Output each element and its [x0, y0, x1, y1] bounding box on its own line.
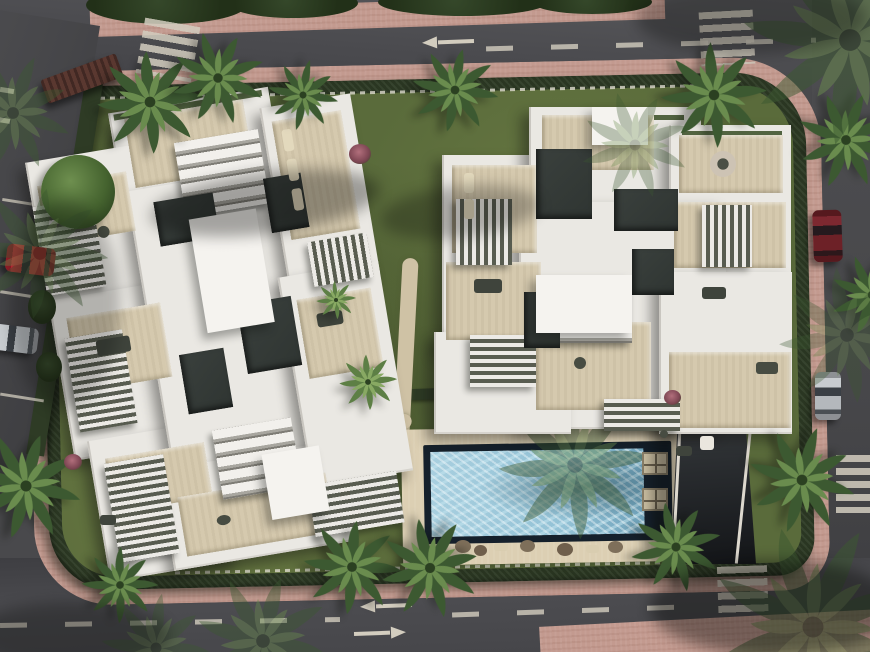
- garden-palm: [314, 278, 358, 322]
- pergola: [702, 205, 752, 267]
- garden-table: [100, 515, 116, 525]
- garden-table: [676, 446, 692, 456]
- outdoor-furniture: [574, 357, 586, 369]
- dining-table: [702, 287, 726, 299]
- courtyard: [179, 348, 233, 415]
- parasol: [557, 543, 573, 556]
- garden-table: [700, 436, 714, 450]
- parasol: [520, 540, 535, 552]
- sun-lounger: [586, 545, 599, 553]
- palm-tree: [365, 503, 495, 633]
- garden-palm: [336, 350, 400, 414]
- flower-bush: [64, 454, 82, 470]
- shadow-blob: [10, 200, 120, 410]
- flower-bush: [349, 144, 371, 164]
- flower-bush: [664, 390, 681, 405]
- dining-table: [474, 279, 502, 293]
- aerial-render: [0, 0, 870, 652]
- sun-lounger: [494, 543, 508, 551]
- garden-chair: [660, 430, 668, 438]
- bright-roof-slab: [536, 275, 632, 333]
- courtyard: [632, 249, 674, 295]
